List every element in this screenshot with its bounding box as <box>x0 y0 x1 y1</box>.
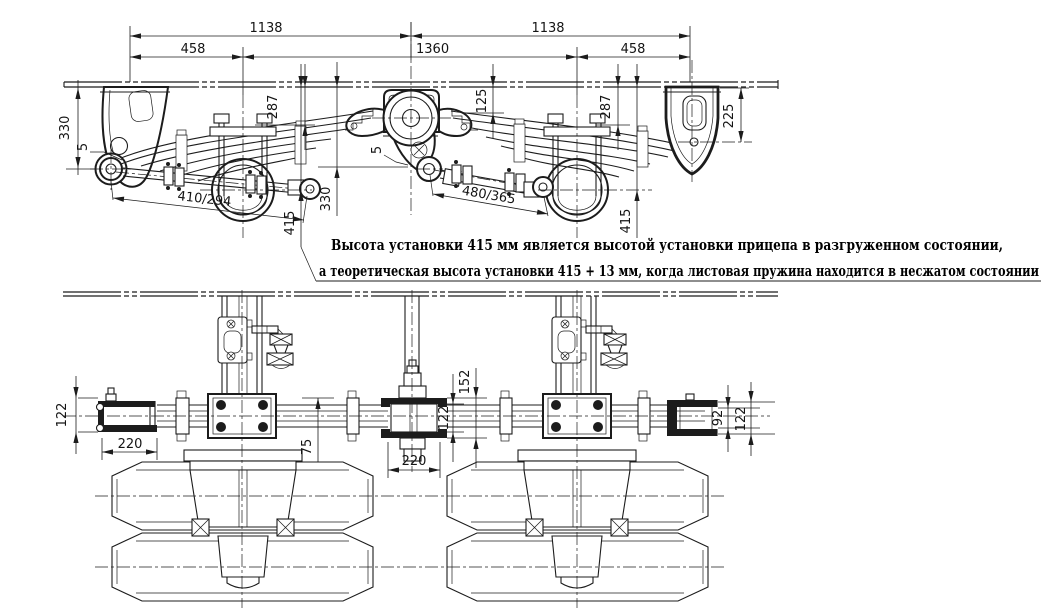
dim-span-front: 1138 <box>249 21 282 36</box>
front-hanger-side <box>90 87 170 190</box>
brake-bracket-front <box>218 317 252 363</box>
installation-note: Высота установки 415 мм является высотой… <box>301 237 1041 281</box>
rear-hanger-bottom <box>667 394 717 436</box>
dim-equalizer-width: 122 <box>437 406 452 431</box>
dim-equalizer-clearance: 5 <box>370 146 385 154</box>
dim-front-seat-height: 287 <box>266 95 281 120</box>
bottom-view: 122 220 75 122 152 220 92 <box>55 290 778 608</box>
brake-chamber-front <box>252 326 293 369</box>
bottom-rail <box>97 360 718 461</box>
dim-front-hanger-width: 122 <box>55 403 70 428</box>
dim-equalizer-length: 220 <box>402 454 427 469</box>
dim-spring-offset: 75 <box>300 439 315 456</box>
note-line-2: а теоретическая высота установки 415 + 1… <box>319 263 1039 280</box>
side-view: 1138 1138 458 1360 458 330 5 410/294 287 <box>58 21 778 247</box>
brake-chamber-rear <box>586 326 627 369</box>
rear-leaf-spring <box>451 109 694 221</box>
note-line-1: Высота установки 415 мм является высотой… <box>331 237 1003 254</box>
dim-ride-height-front: 415 <box>283 211 298 236</box>
drawing-page: 1138 1138 458 1360 458 330 5 410/294 287 <box>0 0 1043 613</box>
dim-rear-458: 458 <box>621 42 646 57</box>
dim-rear-hanger-outer-width: 122 <box>734 407 749 432</box>
dim-1360: 1360 <box>416 42 449 57</box>
dim-front-hanger-length: 220 <box>118 437 143 452</box>
dim-equalizer-seat-width: 152 <box>458 370 473 395</box>
dim-equalizer-drop: 125 <box>475 89 490 114</box>
dim-frame-to-eye: 330 <box>319 187 334 212</box>
dim-rear-hanger-height: 225 <box>722 104 737 129</box>
brake-bracket-rear <box>552 317 586 363</box>
dim-span-rear: 1138 <box>531 21 564 36</box>
dim-front-clearance: 5 <box>76 143 91 151</box>
dim-rear-seat-height: 287 <box>599 95 614 120</box>
suspension-technical-drawing: 1138 1138 458 1360 458 330 5 410/294 287 <box>0 0 1043 613</box>
dim-front-458: 458 <box>181 42 206 57</box>
dim-front-hanger-height: 330 <box>58 116 73 141</box>
front-hanger-bottom <box>97 388 158 432</box>
dim-rear-hanger-inner-width: 92 <box>711 410 726 427</box>
dim-ride-height-rear: 415 <box>619 209 634 234</box>
frame-rail-bottom <box>63 292 778 296</box>
